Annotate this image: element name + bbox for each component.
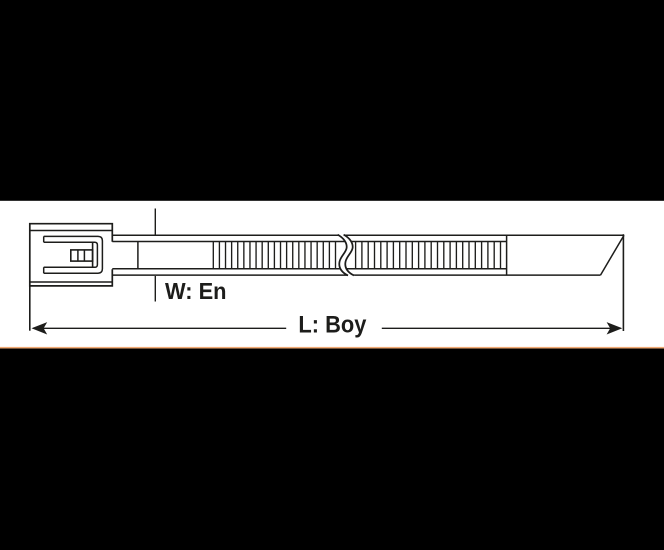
svg-text:W: En: W: En [165,278,227,304]
svg-text:L: Boy: L: Boy [298,311,367,338]
